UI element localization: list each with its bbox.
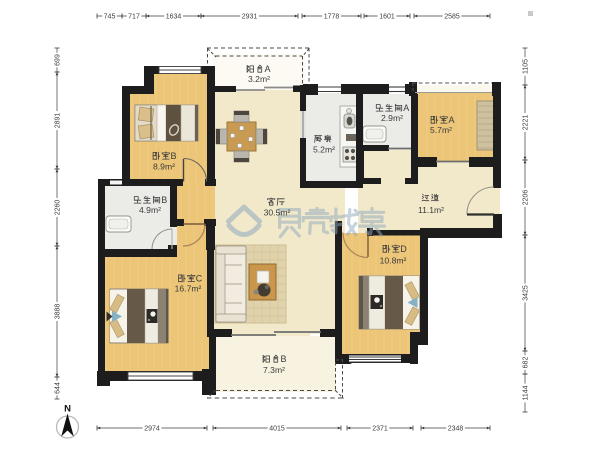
svg-text:A: A: [264, 64, 270, 74]
svg-text:2931: 2931: [242, 13, 258, 20]
svg-text:3.2m²: 3.2m²: [248, 74, 270, 84]
svg-text:1778: 1778: [324, 13, 340, 20]
svg-text:1144: 1144: [522, 385, 529, 400]
svg-text:1601: 1601: [379, 13, 395, 20]
svg-text:10.8m²: 10.8m²: [380, 256, 407, 266]
svg-text:2260: 2260: [54, 200, 61, 216]
svg-text:1634: 1634: [166, 13, 182, 20]
svg-text:C: C: [196, 273, 203, 283]
svg-text:B: B: [161, 195, 167, 205]
svg-text:5.7m²: 5.7m²: [430, 125, 452, 135]
svg-text:4.9m²: 4.9m²: [139, 205, 161, 215]
svg-text:2221: 2221: [522, 115, 529, 131]
svg-text:2371: 2371: [372, 425, 388, 432]
svg-text:682: 682: [522, 357, 529, 369]
svg-text:3425: 3425: [522, 285, 529, 301]
svg-text:N: N: [64, 404, 71, 415]
svg-text:30.5m²: 30.5m²: [264, 208, 291, 218]
svg-text:B: B: [170, 151, 176, 161]
svg-text:745: 745: [104, 13, 116, 20]
svg-text:A: A: [403, 103, 409, 113]
svg-text:4015: 4015: [269, 425, 285, 432]
svg-text:A: A: [448, 115, 454, 125]
svg-text:8.9m²: 8.9m²: [153, 162, 175, 172]
svg-text:1105: 1105: [522, 59, 529, 74]
svg-text:7.3m²: 7.3m²: [263, 365, 285, 375]
svg-text:2348: 2348: [448, 425, 464, 432]
svg-text:D: D: [400, 244, 407, 254]
svg-text:2585: 2585: [444, 13, 460, 20]
svg-text:B: B: [280, 354, 286, 364]
svg-text:5.2m²: 5.2m²: [313, 145, 335, 155]
svg-text:717: 717: [128, 13, 140, 20]
svg-text:16.7m²: 16.7m²: [175, 284, 202, 294]
svg-text:2974: 2974: [144, 425, 160, 432]
svg-text:2.9m²: 2.9m²: [381, 113, 403, 123]
svg-text:3888: 3888: [54, 304, 61, 320]
svg-text:2891: 2891: [54, 113, 61, 129]
svg-text:644: 644: [54, 382, 61, 394]
svg-text:699: 699: [54, 54, 61, 66]
svg-text:11.1m²: 11.1m²: [418, 205, 444, 215]
svg-text:2206: 2206: [522, 190, 529, 206]
